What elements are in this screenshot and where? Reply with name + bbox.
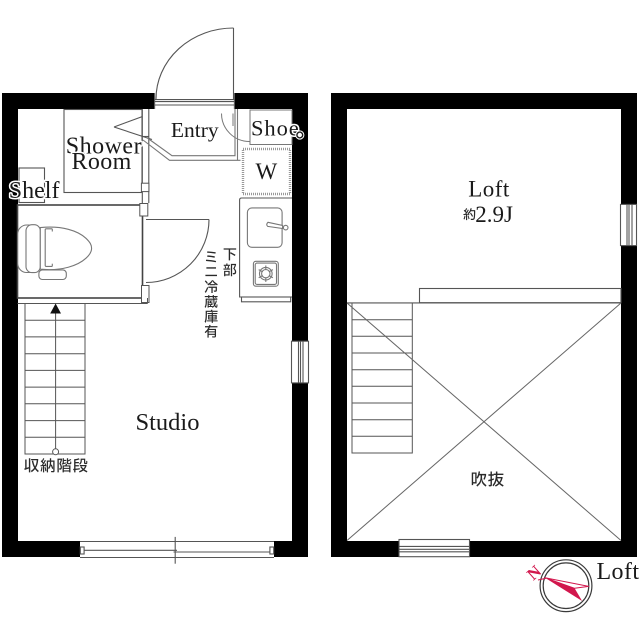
- svg-text:2.9J: 2.9J: [475, 202, 513, 227]
- svg-text:Entry: Entry: [171, 118, 219, 142]
- svg-text:Loft: Loft: [597, 559, 639, 585]
- svg-text:Room: Room: [71, 149, 131, 175]
- svg-text:Studio: Studio: [136, 409, 200, 436]
- svg-text:Loft: Loft: [468, 176, 510, 201]
- svg-text:W: W: [256, 159, 278, 184]
- svg-text:Shelf: Shelf: [9, 178, 60, 204]
- svg-text:Shoe: Shoe: [251, 116, 300, 141]
